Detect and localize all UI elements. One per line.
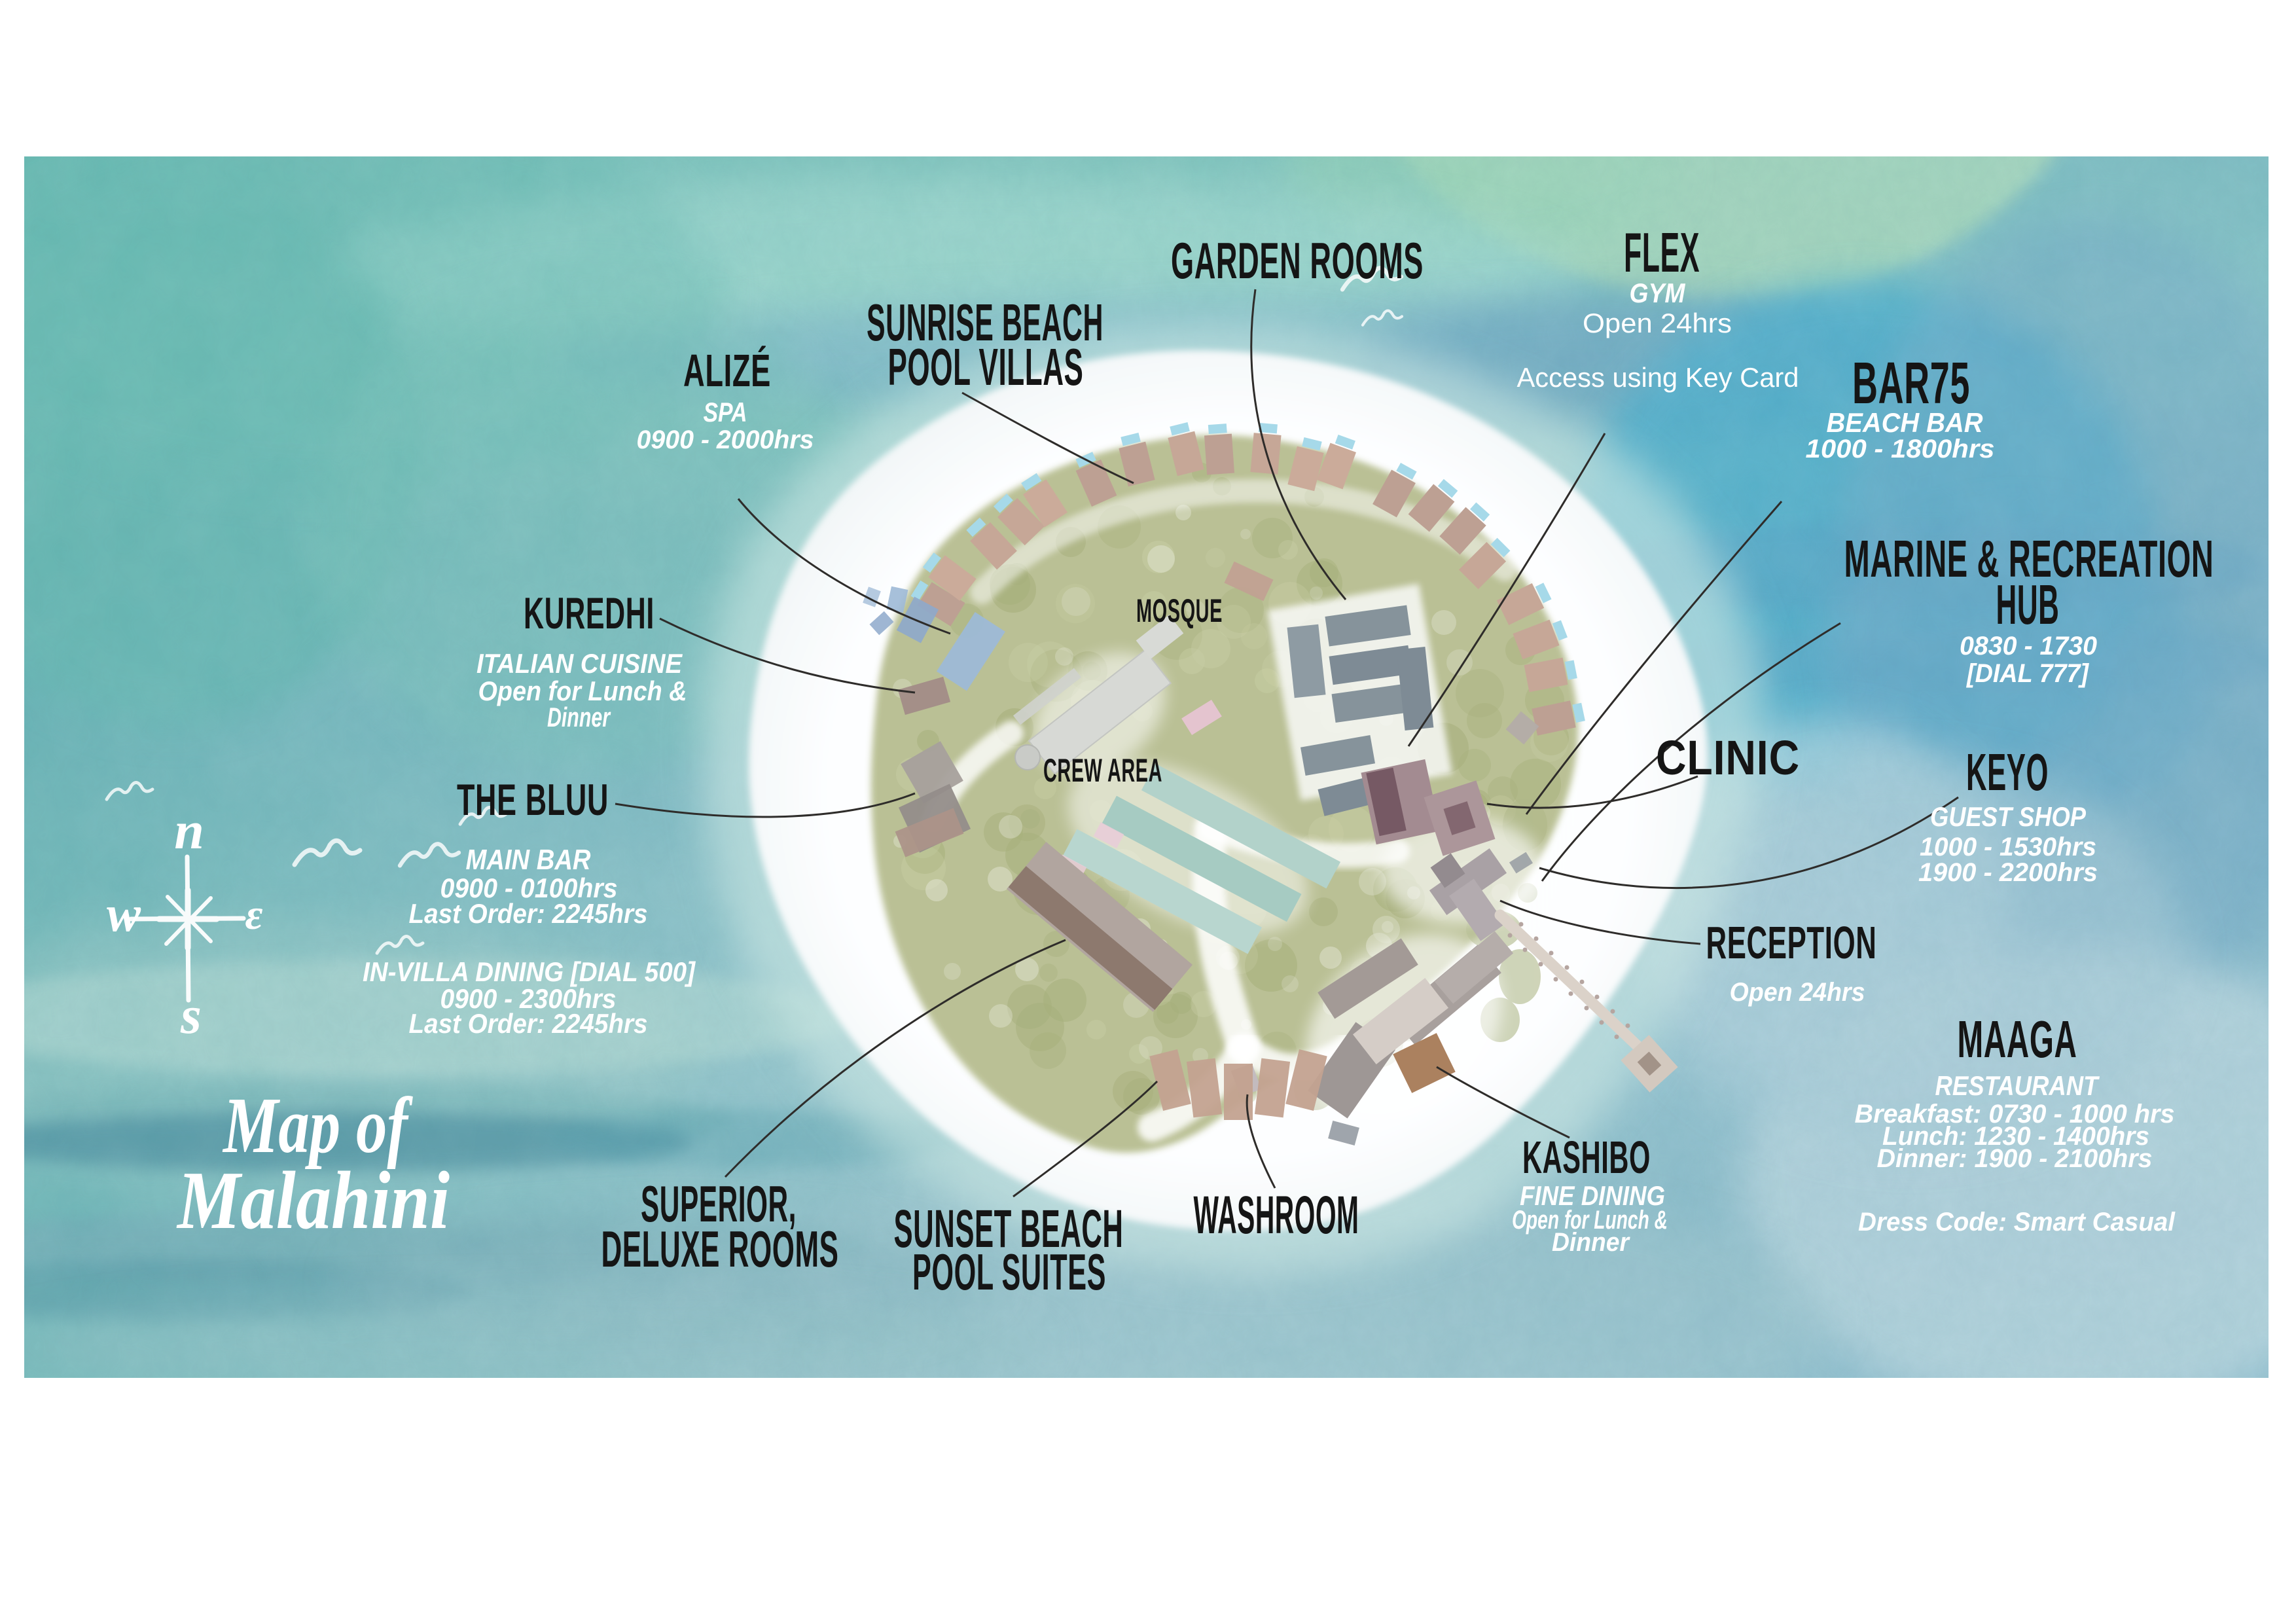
svg-text:ε: ε xyxy=(245,891,262,939)
svg-text:KEYO: KEYO xyxy=(1966,743,2049,801)
svg-text:Dinner: Dinner xyxy=(547,702,611,732)
svg-text:KASHIBO: KASHIBO xyxy=(1522,1132,1651,1183)
svg-text:RECEPTION: RECEPTION xyxy=(1706,917,1877,968)
svg-text:Open 24hrs: Open 24hrs xyxy=(1730,978,1865,1007)
svg-text:CLINIC: CLINIC xyxy=(1656,731,1800,785)
svg-text:1000 - 1530hrs: 1000 - 1530hrs xyxy=(1920,833,2096,861)
svg-text:GARDEN ROOMS: GARDEN ROOMS xyxy=(1171,232,1424,289)
svg-text:0830 - 1730: 0830 - 1730 xyxy=(1960,632,2097,660)
svg-text:Dress Code: Smart Casual: Dress Code: Smart Casual xyxy=(1858,1208,2176,1236)
svg-text:DELUXE ROOMS: DELUXE ROOMS xyxy=(601,1220,839,1278)
svg-text:Open 24hrs: Open 24hrs xyxy=(1583,308,1732,338)
svg-text:POOL SUITES: POOL SUITES xyxy=(912,1243,1106,1301)
svg-text:BEACH BAR: BEACH BAR xyxy=(1827,407,1984,438)
svg-text:Access using Key Card: Access using Key Card xyxy=(1517,362,1799,393)
svg-text:THE BLUU: THE BLUU xyxy=(457,775,609,825)
svg-text:1000 - 1800hrs: 1000 - 1800hrs xyxy=(1806,435,1995,463)
svg-text:1900 - 2200hrs: 1900 - 2200hrs xyxy=(1918,858,2098,887)
svg-text:POOL VILLAS: POOL VILLAS xyxy=(888,338,1084,396)
svg-text:IN-VILLA DINING [DIAL 500]: IN-VILLA DINING [DIAL 500] xyxy=(363,956,696,987)
svg-text:FLEX: FLEX xyxy=(1624,222,1700,284)
svg-text:GUEST SHOP: GUEST SHOP xyxy=(1930,801,2087,832)
svg-text:Dinner: Dinner xyxy=(1552,1228,1630,1257)
svg-text:w: w xyxy=(107,885,141,942)
svg-text:n: n xyxy=(174,801,204,860)
svg-text:ALIZÉ: ALIZÉ xyxy=(683,345,771,396)
svg-text:CREW AREA: CREW AREA xyxy=(1043,752,1162,789)
svg-text:Last Order: 2245hrs: Last Order: 2245hrs xyxy=(409,1008,648,1039)
svg-text:WASHROOM: WASHROOM xyxy=(1194,1185,1359,1245)
svg-text:MAIN BAR: MAIN BAR xyxy=(466,844,591,876)
svg-text:BAR75: BAR75 xyxy=(1852,351,1970,416)
svg-text:MOSQUE: MOSQUE xyxy=(1136,592,1223,629)
svg-text:0900 - 2000hrs: 0900 - 2000hrs xyxy=(637,425,814,454)
svg-text:Dinner: 1900 - 2100hrs: Dinner: 1900 - 2100hrs xyxy=(1877,1144,2153,1173)
svg-text:MAAGA: MAAGA xyxy=(1958,1010,2077,1068)
svg-text:RESTAURANT: RESTAURANT xyxy=(1935,1070,2100,1101)
svg-text:SPA: SPA xyxy=(704,397,747,427)
svg-text:s: s xyxy=(180,985,202,1045)
svg-text:GYM: GYM xyxy=(1630,278,1686,308)
svg-text:Last Order: 2245hrs: Last Order: 2245hrs xyxy=(409,898,648,929)
svg-text:HUB: HUB xyxy=(1996,574,2060,636)
svg-text:[DIAL 777]: [DIAL 777] xyxy=(1965,659,2089,688)
svg-text:ITALIAN CUISINE: ITALIAN CUISINE xyxy=(476,648,683,679)
svg-text:Malahini: Malahini xyxy=(176,1155,450,1246)
svg-text:KUREDHI: KUREDHI xyxy=(524,588,655,638)
